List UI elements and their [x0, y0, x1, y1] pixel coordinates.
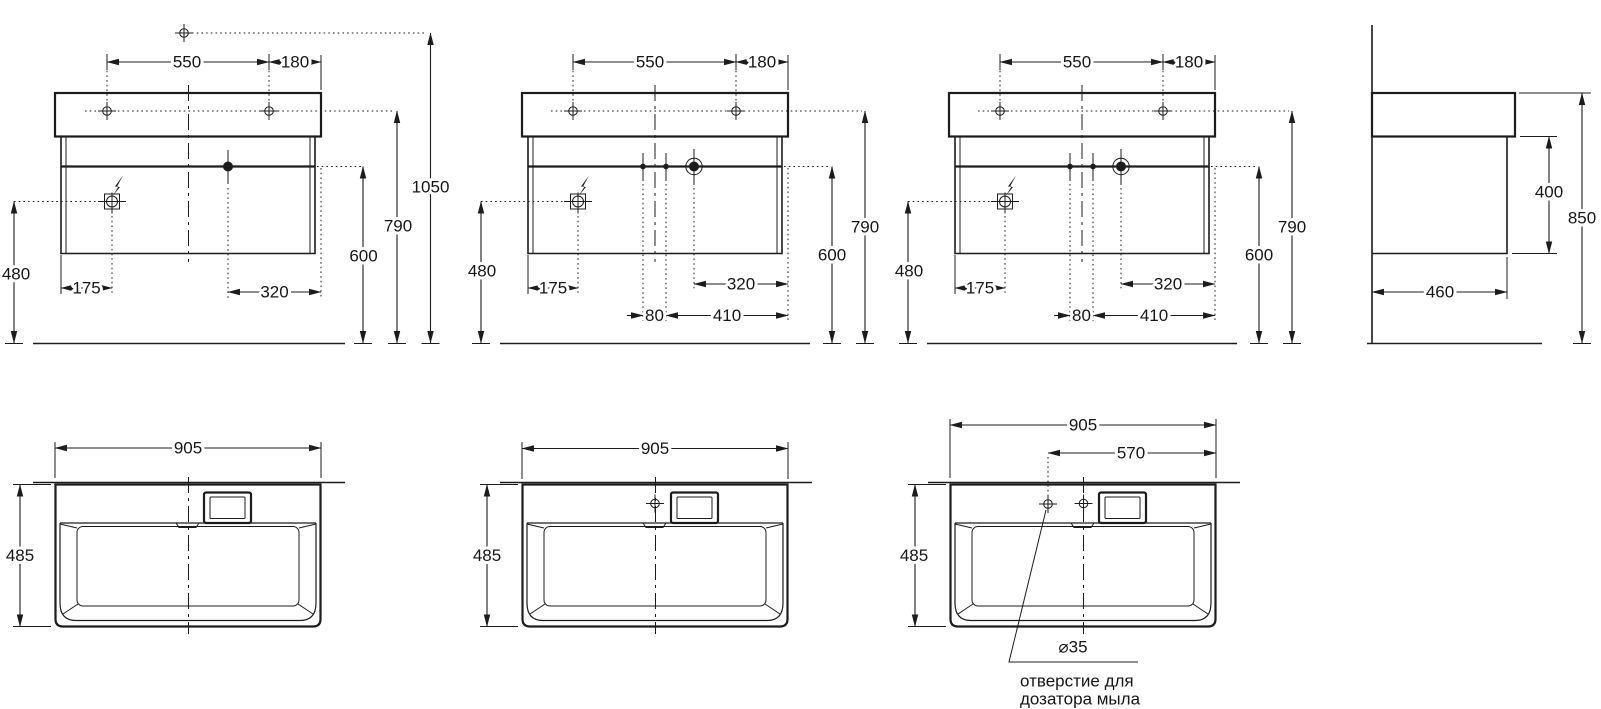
faucet-hole-icon [1075, 495, 1093, 513]
dim-depth: 485 [900, 546, 928, 565]
dim-supply-spacing: 80 [645, 306, 664, 325]
dim-siphon-height: 600 [818, 246, 846, 265]
plan-view-2: 905 485 [473, 439, 812, 634]
basin-side-outline [1372, 93, 1515, 137]
soap-dispenser-callout: ⌀35 отверстие для дозатора мыла [1020, 638, 1141, 709]
dim-supply-spacing: 80 [1072, 306, 1091, 325]
dim-siphon-height: 600 [349, 247, 377, 266]
dim-depth: 485 [473, 546, 501, 565]
soap-dispenser-hole-icon [1039, 495, 1057, 513]
dim-supply-from-right: 410 [713, 306, 741, 325]
dim-holes-height: 790 [851, 218, 879, 237]
dim-depth: 460 [1426, 283, 1454, 302]
dim-mixer-height: 1050 [412, 178, 450, 197]
front-view-3: 550 180 790 600 480 175 320 80 410 [895, 53, 1306, 344]
dim-depth: 485 [6, 546, 34, 565]
dim-hole-diameter: ⌀35 [1058, 638, 1087, 657]
dim-overall-height: 850 [1568, 209, 1596, 228]
dim-hole-to-edge: 180 [1175, 53, 1203, 72]
dim-holes-height: 790 [1278, 218, 1306, 237]
front-view-2: 550 180 790 600 480 175 320 80 410 [468, 53, 879, 344]
dim-hole-spacing: 550 [1063, 53, 1091, 72]
dim-hole-spacing: 550 [173, 53, 201, 72]
dim-hole-to-edge: 180 [748, 53, 776, 72]
dim-width: 905 [1069, 416, 1097, 435]
dim-outlet-from-left: 175 [539, 279, 567, 298]
dim-cabinet-height: 400 [1535, 183, 1563, 202]
dim-hole-to-edge: 180 [281, 53, 309, 72]
mixer-mount-marker [175, 24, 193, 42]
front-view-1: 550 180 1050 790 600 480 175 320 [2, 24, 450, 344]
dim-width: 905 [641, 439, 669, 458]
dim-outlet-from-left: 175 [966, 279, 994, 298]
dim-outlet-height: 480 [895, 262, 923, 281]
dim-hole-spacing: 550 [636, 53, 664, 72]
dim-siphon-height: 600 [1245, 246, 1273, 265]
dim-holes-height: 790 [384, 217, 412, 236]
dim-width: 905 [174, 439, 202, 458]
dim-outlet-height: 480 [468, 262, 496, 281]
faucet-hole-icon [646, 495, 664, 513]
dim-drain-from-right: 320 [727, 275, 755, 294]
cabinet-side-outline [1372, 137, 1507, 254]
dim-drain-from-right: 320 [260, 283, 288, 302]
dim-outlet-height: 480 [2, 265, 30, 284]
plan-view-3: 905 570 485 ⌀35 отверстие для дозатора м… [900, 416, 1240, 709]
dim-supply-from-right: 410 [1140, 306, 1168, 325]
callout-note-line1: отверстие для [1020, 672, 1134, 691]
side-view: 400 850 460 [1367, 25, 1596, 344]
dim-drain-from-right: 320 [1154, 275, 1182, 294]
dim-dispenser-from-right: 570 [1117, 444, 1145, 463]
plan-view-1: 905 485 [6, 439, 345, 635]
washbasin-technical-drawing: 550 180 1050 790 600 480 175 320 550 180… [0, 0, 1601, 709]
dim-outlet-from-left: 175 [72, 279, 100, 298]
callout-note-line2: дозатора мыла [1020, 690, 1141, 709]
